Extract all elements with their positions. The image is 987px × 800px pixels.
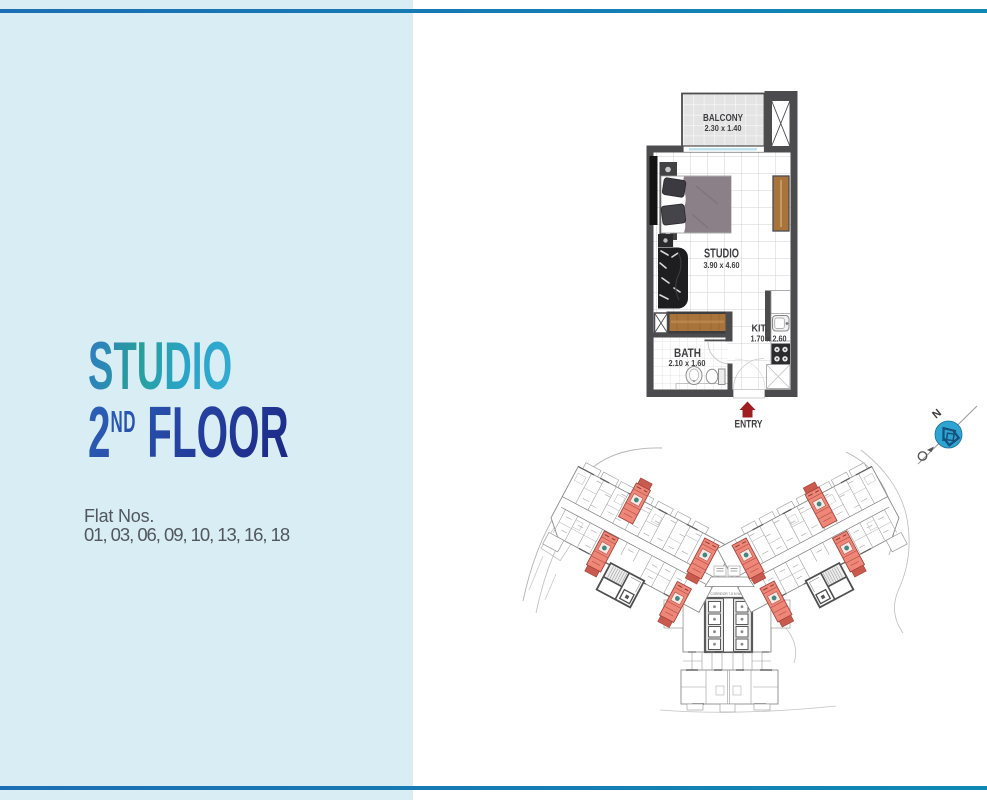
svg-text:3.90 x 4.60: 3.90 x 4.60 (704, 260, 740, 270)
svg-text:N: N (930, 407, 944, 421)
svg-text:1.70 x 2.60: 1.70 x 2.60 (751, 335, 787, 344)
svg-text:KIT.: KIT. (752, 324, 768, 335)
svg-text:BALCONY: BALCONY (703, 113, 743, 124)
svg-text:2.30 x 1.40: 2.30 x 1.40 (705, 124, 742, 133)
svg-text:2.10 x 1.60: 2.10 x 1.60 (669, 359, 706, 368)
svg-text:STUDIO: STUDIO (704, 246, 739, 261)
